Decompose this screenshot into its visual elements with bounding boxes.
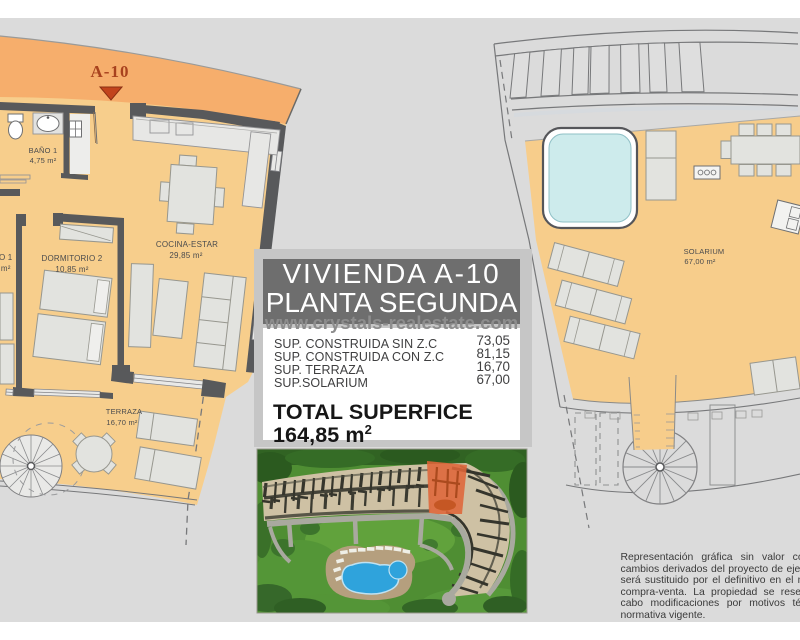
svg-text:DORMITORIO 1: DORMITORIO 1 bbox=[0, 253, 13, 262]
svg-text:BAÑO 1: BAÑO 1 bbox=[29, 146, 58, 155]
svg-text:67,00 m²: 67,00 m² bbox=[684, 257, 715, 266]
svg-text:10,85 m²: 10,85 m² bbox=[55, 265, 88, 274]
svg-text:COCINA-ESTAR: COCINA-ESTAR bbox=[156, 240, 218, 249]
svg-text:A-10: A-10 bbox=[91, 62, 130, 81]
svg-text:TERRAZA: TERRAZA bbox=[106, 407, 142, 416]
svg-text:SOLARIUM: SOLARIUM bbox=[684, 247, 725, 256]
svg-text:29,85 m²: 29,85 m² bbox=[169, 251, 202, 260]
svg-text:4,75 m²: 4,75 m² bbox=[30, 156, 57, 165]
svg-text:10,50 m²: 10,50 m² bbox=[0, 264, 11, 273]
svg-text:DORMITORIO 2: DORMITORIO 2 bbox=[42, 254, 103, 263]
svg-text:16,70 m²: 16,70 m² bbox=[106, 418, 137, 427]
